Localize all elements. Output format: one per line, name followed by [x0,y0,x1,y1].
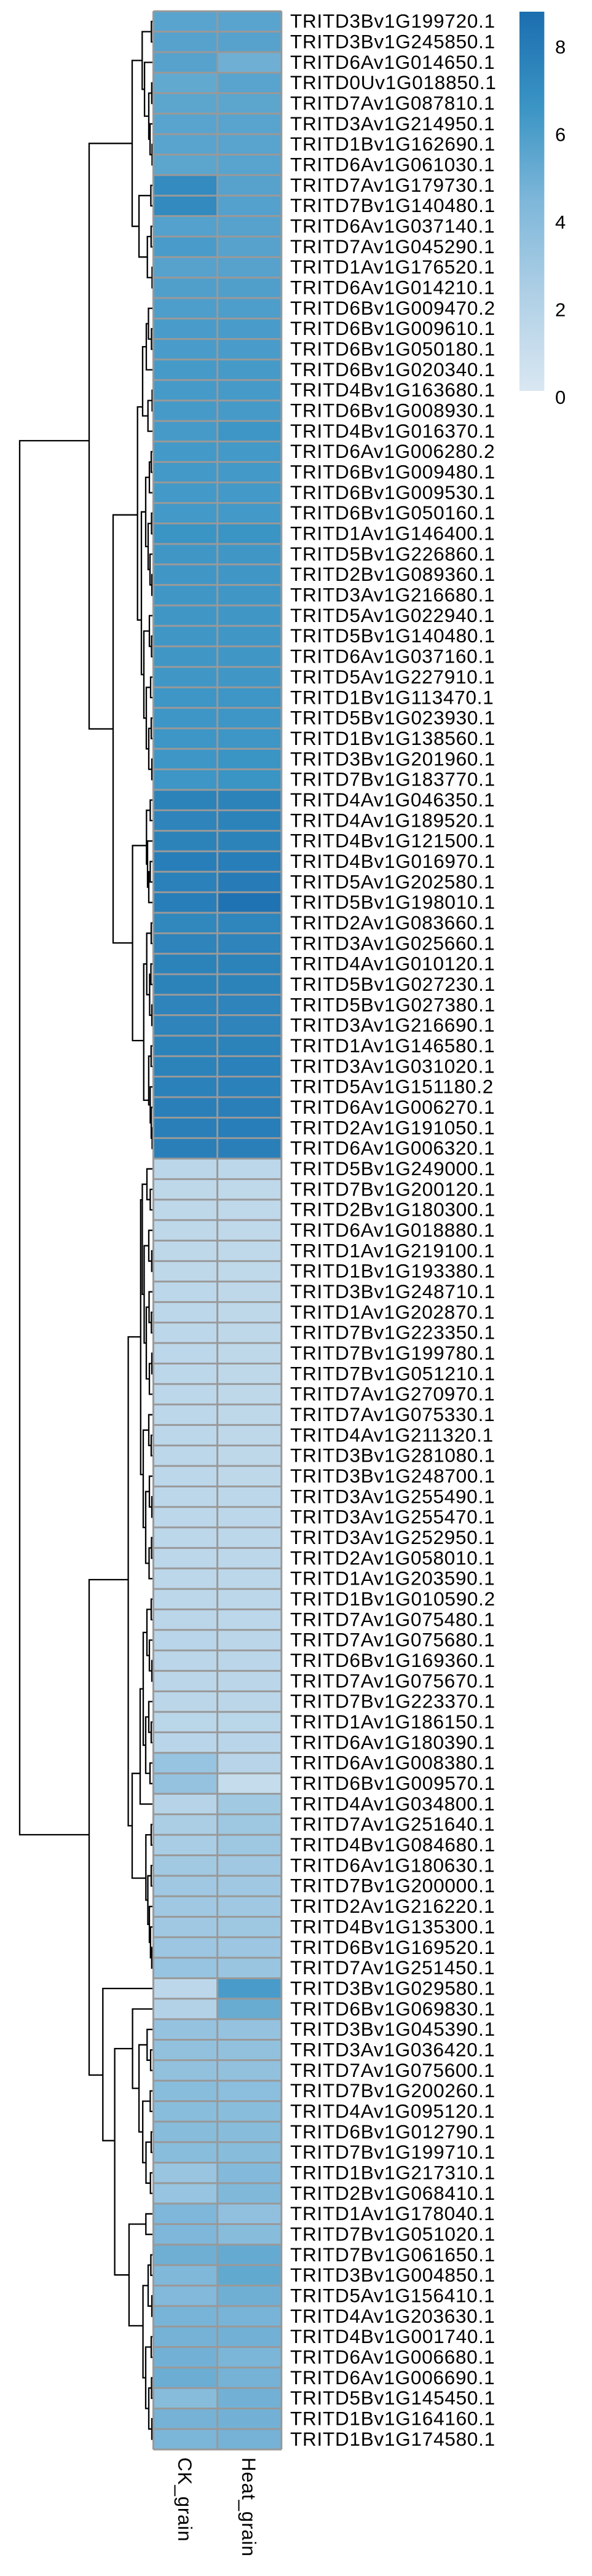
svg-text:TRITD3Bv1G248700.1: TRITD3Bv1G248700.1 [290,1465,495,1487]
svg-text:TRITD7Bv1G183770.1: TRITD7Bv1G183770.1 [290,768,495,790]
svg-text:TRITD3Av1G036420.1: TRITD3Av1G036420.1 [290,2038,495,2060]
svg-text:TRITD6Bv1G069830.1: TRITD6Bv1G069830.1 [290,1998,495,2020]
svg-text:TRITD6Av1G014650.1: TRITD6Av1G014650.1 [290,51,495,73]
svg-text:TRITD4Bv1G135300.1: TRITD4Bv1G135300.1 [290,1915,495,1937]
svg-text:2: 2 [555,299,566,321]
svg-text:TRITD3Av1G216680.1: TRITD3Av1G216680.1 [290,584,495,606]
svg-text:TRITD2Av1G216220.1: TRITD2Av1G216220.1 [290,1895,495,1917]
svg-text:TRITD5Av1G227910.1: TRITD5Av1G227910.1 [290,666,495,688]
svg-text:TRITD1Bv1G162690.1: TRITD1Bv1G162690.1 [290,133,495,155]
svg-text:TRITD5Bv1G198010.1: TRITD5Bv1G198010.1 [290,891,495,913]
svg-text:TRITD3Bv1G281080.1: TRITD3Bv1G281080.1 [290,1444,495,1467]
svg-text:TRITD7Bv1G200000.1: TRITD7Bv1G200000.1 [290,1875,495,1897]
svg-text:TRITD1Av1G186150.1: TRITD1Av1G186150.1 [290,1711,495,1733]
svg-text:0: 0 [555,387,566,408]
svg-text:TRITD1Bv1G113470.1: TRITD1Bv1G113470.1 [290,686,494,708]
svg-text:TRITD7Bv1G061650.1: TRITD7Bv1G061650.1 [290,2243,495,2266]
svg-text:TRITD4Av1G034800.1: TRITD4Av1G034800.1 [290,1792,495,1814]
svg-text:TRITD7Av1G075680.1: TRITD7Av1G075680.1 [290,1629,495,1651]
svg-text:TRITD4Bv1G016370.1: TRITD4Bv1G016370.1 [290,420,495,442]
svg-text:TRITD6Av1G006320.1: TRITD6Av1G006320.1 [290,1137,495,1159]
svg-text:TRITD7Av1G179730.1: TRITD7Av1G179730.1 [290,174,495,196]
svg-text:TRITD7Av1G087810.1: TRITD7Av1G087810.1 [290,92,495,114]
svg-text:TRITD6Av1G006270.1: TRITD6Av1G006270.1 [290,1096,495,1118]
svg-text:TRITD1Bv1G217310.1: TRITD1Bv1G217310.1 [290,2161,495,2183]
svg-text:TRITD2Av1G191050.1: TRITD2Av1G191050.1 [290,1116,495,1138]
svg-text:TRITD7Av1G075480.1: TRITD7Av1G075480.1 [290,1608,495,1630]
svg-text:TRITD3Av1G214950.1: TRITD3Av1G214950.1 [290,112,495,135]
svg-text:TRITD6Av1G006690.1: TRITD6Av1G006690.1 [290,2366,495,2389]
svg-text:TRITD6Bv1G008930.1: TRITD6Bv1G008930.1 [290,400,495,422]
svg-text:TRITD7Bv1G223370.1: TRITD7Bv1G223370.1 [290,1690,495,1712]
svg-text:TRITD6Av1G018880.1: TRITD6Av1G018880.1 [290,1219,495,1241]
svg-text:TRITD4Av1G046350.1: TRITD4Av1G046350.1 [290,789,495,811]
svg-text:TRITD3Bv1G199720.1: TRITD3Bv1G199720.1 [290,10,495,32]
svg-text:TRITD7Av1G251450.1: TRITD7Av1G251450.1 [290,1956,495,1979]
svg-text:TRITD3Bv1G045390.1: TRITD3Bv1G045390.1 [290,2018,495,2040]
svg-text:TRITD3Av1G031020.1: TRITD3Av1G031020.1 [290,1055,495,1077]
svg-text:TRITD1Av1G176520.1: TRITD1Av1G176520.1 [290,256,495,278]
svg-text:TRITD5Bv1G027380.1: TRITD5Bv1G027380.1 [290,993,495,1015]
svg-text:TRITD6Bv1G169520.1: TRITD6Bv1G169520.1 [290,1936,495,1958]
svg-text:TRITD1Bv1G138560.1: TRITD1Bv1G138560.1 [290,727,495,749]
svg-text:TRITD6Bv1G020340.1: TRITD6Bv1G020340.1 [290,358,495,380]
svg-text:TRITD1Av1G202870.1: TRITD1Av1G202870.1 [290,1301,495,1323]
svg-text:TRITD3Bv1G245850.1: TRITD3Bv1G245850.1 [290,31,495,53]
svg-text:TRITD3Bv1G004850.1: TRITD3Bv1G004850.1 [290,2264,495,2286]
svg-text:TRITD1Av1G146400.1: TRITD1Av1G146400.1 [290,522,495,545]
svg-text:TRITD6Av1G006680.1: TRITD6Av1G006680.1 [290,2346,495,2368]
svg-text:TRITD4Bv1G121500.1: TRITD4Bv1G121500.1 [290,830,495,852]
svg-text:TRITD3Av1G255490.1: TRITD3Av1G255490.1 [290,1485,495,1507]
svg-text:TRITD3Av1G252950.1: TRITD3Av1G252950.1 [290,1526,495,1548]
svg-text:8: 8 [555,36,566,58]
svg-text:TRITD4Bv1G001740.1: TRITD4Bv1G001740.1 [290,2325,495,2347]
svg-text:TRITD1Av1G146580.1: TRITD1Av1G146580.1 [290,1034,495,1057]
svg-text:TRITD6Av1G180390.1: TRITD6Av1G180390.1 [290,1731,495,1753]
svg-text:TRITD5Av1G202580.1: TRITD5Av1G202580.1 [290,870,495,892]
svg-text:TRITD7Bv1G051020.1: TRITD7Bv1G051020.1 [290,2223,495,2245]
svg-text:TRITD6Bv1G009470.2: TRITD6Bv1G009470.2 [290,297,495,319]
svg-text:TRITD2Bv1G068410.1: TRITD2Bv1G068410.1 [290,2182,495,2204]
svg-text:TRITD4Av1G203630.1: TRITD4Av1G203630.1 [290,2305,495,2327]
svg-text:TRITD7Bv1G199780.1: TRITD7Bv1G199780.1 [290,1342,495,1364]
svg-text:TRITD5Bv1G140480.1: TRITD5Bv1G140480.1 [290,624,495,647]
svg-text:TRITD6Av1G180630.1: TRITD6Av1G180630.1 [290,1854,495,1876]
svg-text:TRITD5Av1G156410.1: TRITD5Av1G156410.1 [290,2285,495,2307]
svg-text:TRITD4Av1G189520.1: TRITD4Av1G189520.1 [290,809,495,831]
svg-text:TRITD3Av1G025660.1: TRITD3Av1G025660.1 [290,932,495,954]
svg-text:TRITD6Bv1G009610.1: TRITD6Bv1G009610.1 [290,317,495,339]
svg-text:TRITD6Bv1G009530.1: TRITD6Bv1G009530.1 [290,481,495,503]
svg-text:TRITD7Av1G270970.1: TRITD7Av1G270970.1 [290,1383,495,1405]
svg-text:TRITD7Bv1G199710.1: TRITD7Bv1G199710.1 [290,2141,495,2163]
svg-text:TRITD0Uv1G018850.1: TRITD0Uv1G018850.1 [290,71,497,93]
svg-text:TRITD7Av1G075600.1: TRITD7Av1G075600.1 [290,2059,495,2081]
svg-text:TRITD7Bv1G200260.1: TRITD7Bv1G200260.1 [290,2079,495,2101]
svg-text:TRITD7Bv1G223350.1: TRITD7Bv1G223350.1 [290,1321,495,1344]
svg-text:TRITD7Av1G045290.1: TRITD7Av1G045290.1 [290,235,495,258]
svg-text:TRITD2Av1G058010.1: TRITD2Av1G058010.1 [290,1546,495,1569]
svg-text:TRITD5Av1G022940.1: TRITD5Av1G022940.1 [290,604,495,626]
svg-text:TRITD6Bv1G169360.1: TRITD6Bv1G169360.1 [290,1649,495,1671]
svg-text:TRITD6Av1G014210.1: TRITD6Av1G014210.1 [290,277,495,299]
svg-text:TRITD1Av1G178040.1: TRITD1Av1G178040.1 [290,2202,495,2224]
svg-text:TRITD5Bv1G027230.1: TRITD5Bv1G027230.1 [290,973,495,995]
svg-text:TRITD4Bv1G163680.1: TRITD4Bv1G163680.1 [290,379,495,401]
svg-text:6: 6 [555,124,566,146]
svg-text:TRITD6Av1G037140.1: TRITD6Av1G037140.1 [290,215,495,237]
svg-text:TRITD3Av1G255470.1: TRITD3Av1G255470.1 [290,1506,495,1528]
svg-text:TRITD7Bv1G200120.1: TRITD7Bv1G200120.1 [290,1178,495,1200]
svg-text:TRITD7Bv1G140480.1: TRITD7Bv1G140480.1 [290,194,495,216]
svg-text:TRITD5Bv1G145450.1: TRITD5Bv1G145450.1 [290,2387,495,2409]
svg-text:TRITD6Bv1G012790.1: TRITD6Bv1G012790.1 [290,2121,495,2143]
svg-text:TRITD1Bv1G193380.1: TRITD1Bv1G193380.1 [290,1260,495,1282]
svg-text:TRITD1Bv1G164160.1: TRITD1Bv1G164160.1 [290,2408,495,2430]
svg-text:TRITD5Bv1G249000.1: TRITD5Bv1G249000.1 [290,1157,495,1180]
svg-text:TRITD6Av1G008380.1: TRITD6Av1G008380.1 [290,1752,495,1774]
svg-text:TRITD2Bv1G180300.1: TRITD2Bv1G180300.1 [290,1199,495,1221]
svg-text:TRITD3Bv1G201960.1: TRITD3Bv1G201960.1 [290,747,495,770]
svg-text:TRITD6Bv1G009570.1: TRITD6Bv1G009570.1 [290,1772,495,1794]
svg-text:TRITD4Av1G010120.1: TRITD4Av1G010120.1 [290,953,495,975]
svg-text:TRITD6Av1G061030.1: TRITD6Av1G061030.1 [290,154,495,176]
svg-text:TRITD5Bv1G023930.1: TRITD5Bv1G023930.1 [290,707,495,729]
svg-text:Heat_grain: Heat_grain [238,2457,260,2557]
svg-text:TRITD6Bv1G050180.1: TRITD6Bv1G050180.1 [290,338,495,360]
svg-text:TRITD6Bv1G050160.1: TRITD6Bv1G050160.1 [290,502,495,524]
svg-text:TRITD4Av1G095120.1: TRITD4Av1G095120.1 [290,2100,495,2122]
svg-text:TRITD4Bv1G084680.1: TRITD4Bv1G084680.1 [290,1834,495,1856]
svg-text:TRITD3Av1G216690.1: TRITD3Av1G216690.1 [290,1014,495,1036]
svg-text:TRITD6Av1G006280.2: TRITD6Av1G006280.2 [290,440,495,462]
svg-text:CK_grain: CK_grain [174,2457,196,2542]
svg-text:4: 4 [555,211,566,233]
svg-text:TRITD5Bv1G226860.1: TRITD5Bv1G226860.1 [290,543,495,565]
svg-text:TRITD2Av1G083660.1: TRITD2Av1G083660.1 [290,912,495,934]
svg-text:TRITD5Av1G151180.2: TRITD5Av1G151180.2 [290,1076,494,1098]
svg-text:TRITD2Bv1G089360.1: TRITD2Bv1G089360.1 [290,563,495,585]
svg-text:TRITD4Bv1G016970.1: TRITD4Bv1G016970.1 [290,850,495,872]
svg-text:TRITD1Bv1G174580.1: TRITD1Bv1G174580.1 [290,2428,495,2450]
svg-text:TRITD1Av1G219100.1: TRITD1Av1G219100.1 [290,1239,495,1261]
svg-text:TRITD7Av1G251640.1: TRITD7Av1G251640.1 [290,1813,495,1835]
svg-text:TRITD1Av1G203590.1: TRITD1Av1G203590.1 [290,1567,495,1589]
svg-text:TRITD3Bv1G029580.1: TRITD3Bv1G029580.1 [290,1977,495,1999]
svg-text:TRITD6Av1G037160.1: TRITD6Av1G037160.1 [290,645,495,668]
svg-text:TRITD3Bv1G248710.1: TRITD3Bv1G248710.1 [290,1280,495,1302]
svg-text:TRITD1Bv1G010590.2: TRITD1Bv1G010590.2 [290,1588,495,1610]
svg-text:TRITD7Av1G075330.1: TRITD7Av1G075330.1 [290,1403,495,1425]
svg-text:TRITD7Bv1G051210.1: TRITD7Bv1G051210.1 [290,1362,495,1384]
svg-text:TRITD7Av1G075670.1: TRITD7Av1G075670.1 [290,1669,495,1692]
svg-text:TRITD6Bv1G009480.1: TRITD6Bv1G009480.1 [290,461,495,483]
svg-text:TRITD4Av1G211320.1: TRITD4Av1G211320.1 [290,1424,494,1446]
